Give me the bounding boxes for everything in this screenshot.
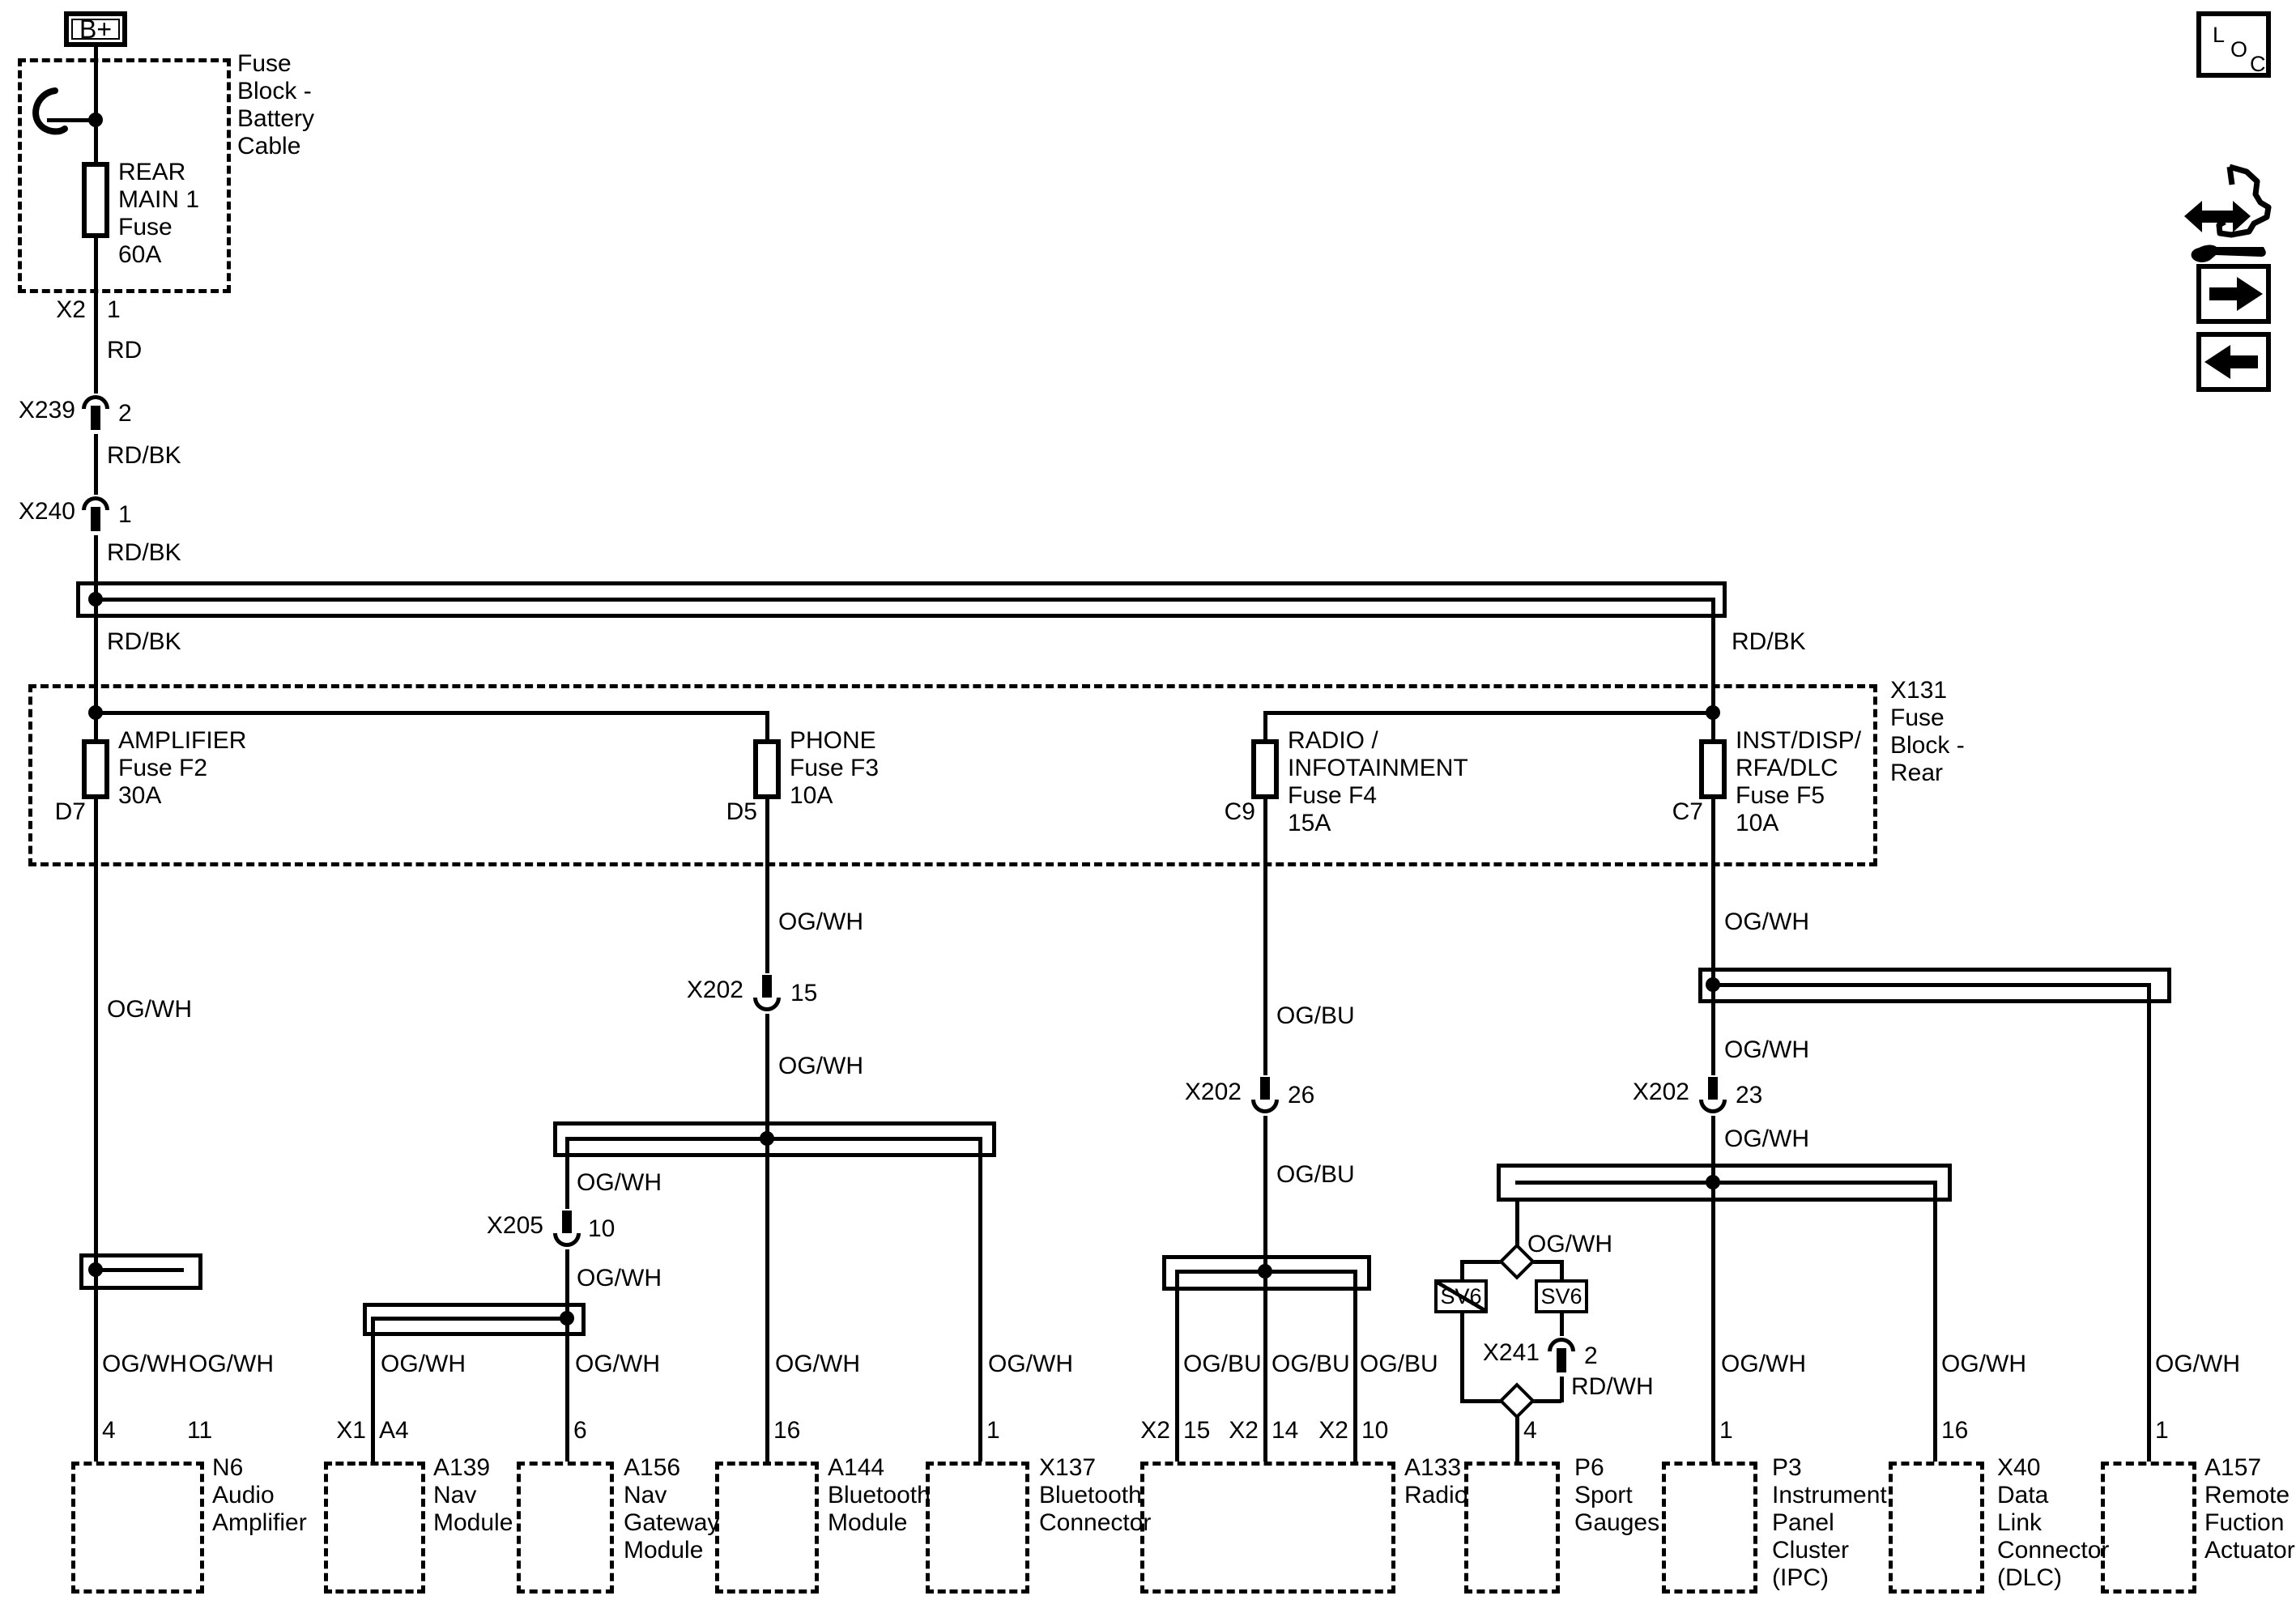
component-box-a144 bbox=[715, 1462, 819, 1594]
wire-label-ogwh: OG/WH bbox=[988, 1351, 1073, 1378]
connector-pin-icon bbox=[562, 1211, 572, 1235]
wire-segment bbox=[1263, 711, 1713, 715]
wire-segment bbox=[1353, 1270, 1357, 1462]
connector-x2-name: X2 bbox=[56, 296, 86, 324]
junction-dot bbox=[88, 705, 103, 720]
connector-pin-icon bbox=[91, 406, 100, 430]
connector-x202-26-name: X202 bbox=[1185, 1079, 1242, 1106]
pin-a133-14: 14 bbox=[1272, 1417, 1298, 1445]
wire-segment bbox=[1711, 983, 2149, 987]
wire-label-ogwh: OG/WH bbox=[102, 1351, 187, 1378]
connector-x202-26-pin: 26 bbox=[1288, 1082, 1314, 1109]
connector-x205-name: X205 bbox=[487, 1212, 543, 1240]
wire-segment bbox=[371, 1317, 567, 1321]
component-label-a144: A144 Bluetooth Module bbox=[828, 1454, 931, 1537]
junction-dot bbox=[88, 1262, 103, 1277]
wire-label-ogwh: OG/WH bbox=[1724, 908, 1809, 936]
fuse-f2-pin: D7 bbox=[55, 798, 86, 826]
wire-segment bbox=[94, 598, 1714, 602]
wire-segment bbox=[2147, 983, 2151, 1462]
junction-dot bbox=[760, 1131, 774, 1146]
component-label-a156: A156 Nav Gateway Module bbox=[624, 1454, 719, 1564]
pin-a133-15: 15 bbox=[1183, 1417, 1210, 1445]
connector-pin-icon bbox=[1557, 1348, 1566, 1372]
fuse-f2-amplifier bbox=[82, 739, 109, 799]
splice-diamond-icon bbox=[1498, 1382, 1535, 1419]
wire-segment bbox=[94, 711, 767, 715]
right-arrow-icon bbox=[2201, 269, 2266, 319]
component-box-p3 bbox=[1662, 1462, 1757, 1594]
wire-label-ogbu: OG/BU bbox=[1276, 1002, 1355, 1030]
wire-label-ogwh: OG/WH bbox=[107, 996, 192, 1023]
fuse-f3-pin: D5 bbox=[726, 798, 757, 826]
wire-label-ogwh: OG/WH bbox=[381, 1351, 466, 1378]
fuse-f2-label: AMPLIFIER Fuse F2 30A bbox=[118, 727, 246, 810]
component-box-x40 bbox=[1889, 1462, 1984, 1594]
wire-label-rdwh: RD/WH bbox=[1571, 1373, 1654, 1401]
fuse-block-rear-label: X131 Fuse Block - Rear bbox=[1890, 677, 1965, 787]
connector-x202-23-name: X202 bbox=[1633, 1079, 1689, 1106]
pin-a133-conn-2: X2 bbox=[1229, 1417, 1259, 1445]
component-label-p3: P3 Instrument Panel Cluster (IPC) bbox=[1772, 1454, 1887, 1592]
wire-segment bbox=[1460, 1312, 1464, 1402]
connector-x2-pin: 1 bbox=[107, 296, 121, 324]
location-view-button[interactable]: L O C bbox=[2196, 11, 2271, 78]
pin-a133-10: 10 bbox=[1361, 1417, 1388, 1445]
connector-pin-icon bbox=[1708, 1077, 1718, 1101]
connector-x202-23-pin: 23 bbox=[1736, 1082, 1762, 1109]
junction-dot bbox=[1706, 705, 1720, 720]
wire-label-rdbk: RD/BK bbox=[107, 539, 181, 567]
sv6-reference: SV6 bbox=[1535, 1279, 1588, 1313]
wire-label-ogwh: OG/WH bbox=[1724, 1126, 1809, 1153]
wire-label-rdbk: RD/BK bbox=[107, 628, 181, 656]
wire-segment bbox=[978, 1137, 982, 1462]
wire-label-rdbk: RD/BK bbox=[1732, 628, 1806, 656]
wire-label-ogwh: OG/WH bbox=[1527, 1231, 1612, 1258]
wire-label-ogbu: OG/BU bbox=[1183, 1351, 1262, 1378]
pin-a139-a4: A4 bbox=[379, 1417, 409, 1445]
connector-x240-name: X240 bbox=[19, 498, 75, 526]
component-view-icon[interactable] bbox=[2183, 162, 2280, 263]
component-label-x40: X40 Data Link Connector (DLC) bbox=[1997, 1454, 2109, 1592]
wire-label-ogwh: OG/WH bbox=[575, 1351, 660, 1378]
loc-letter-c: C bbox=[2250, 52, 2266, 77]
wire-label-ogwh: OG/WH bbox=[577, 1169, 662, 1197]
b-plus-label: B+ bbox=[79, 15, 112, 45]
wire-label-ogwh: OG/WH bbox=[775, 1351, 860, 1378]
wire-label-ogbu: OG/BU bbox=[1276, 1161, 1355, 1189]
wire-label-ogbu: OG/BU bbox=[1360, 1351, 1438, 1378]
connector-x239-pin: 2 bbox=[118, 400, 132, 428]
connector-x241-name: X241 bbox=[1483, 1339, 1540, 1367]
pin-a156-6: 6 bbox=[573, 1417, 587, 1445]
wire-label-ogwh: OG/WH bbox=[577, 1265, 662, 1292]
wire-segment bbox=[565, 1137, 569, 1462]
wire-label-ogwh: OG/WH bbox=[778, 908, 863, 936]
component-label-a133: A133 Radio bbox=[1404, 1454, 1467, 1509]
pin-x40-16: 16 bbox=[1941, 1417, 1968, 1445]
connector-x205-pin: 10 bbox=[588, 1215, 615, 1243]
wire-label-ogwh: OG/WH bbox=[1941, 1351, 2026, 1378]
wire-label-ogwh: OG/WH bbox=[1721, 1351, 1806, 1378]
wire-label-ogwh: OG/WH bbox=[1724, 1036, 1809, 1064]
component-label-p6: P6 Sport Gauges bbox=[1574, 1454, 1659, 1537]
pin-p3-1: 1 bbox=[1719, 1417, 1733, 1445]
pin-n6-11: 11 bbox=[187, 1417, 212, 1445]
connector-pin-icon bbox=[1260, 1077, 1270, 1101]
component-label-x137: X137 Bluetooth Connector bbox=[1039, 1454, 1151, 1537]
left-arrow-icon bbox=[2201, 337, 2266, 387]
fuse-f4-label: RADIO / INFOTAINMENT Fuse F4 15A bbox=[1288, 727, 1468, 837]
component-box-n6 bbox=[71, 1462, 204, 1594]
fuse-rear-main-60a bbox=[82, 162, 109, 238]
component-label-a157: A157 Remote Fuction Actuator bbox=[2204, 1454, 2295, 1564]
connector-pin-icon bbox=[762, 975, 772, 999]
junction-dot bbox=[1706, 1175, 1720, 1189]
fuse-f4-pin: C9 bbox=[1225, 798, 1255, 826]
connector-x202-15-name: X202 bbox=[687, 977, 743, 1004]
connector-x240-pin: 1 bbox=[118, 501, 132, 529]
connector-x202-15-pin: 15 bbox=[790, 980, 817, 1007]
component-box-x137 bbox=[926, 1462, 1029, 1594]
rear-main-fuse-label: REAR MAIN 1 Fuse 60A bbox=[118, 159, 199, 269]
previous-schematic-button[interactable] bbox=[2196, 332, 2271, 392]
battery-cable-hook-icon bbox=[19, 84, 92, 152]
sv6-left-label: SV6 bbox=[1440, 1284, 1481, 1309]
fuse-f4-radio bbox=[1251, 739, 1279, 799]
junction-dot bbox=[88, 592, 103, 606]
loc-letter-l: L bbox=[2213, 23, 2225, 48]
b-plus-terminal: B+ bbox=[64, 11, 127, 47]
pin-n6-4: 4 bbox=[102, 1417, 116, 1445]
wiring-diagram-canvas: B+ SV6 SV6 Fuse Block - Battery Cable RE… bbox=[0, 0, 2296, 1617]
fuse-f5-pin: C7 bbox=[1672, 798, 1703, 826]
wire-segment bbox=[94, 1268, 184, 1272]
wire-segment bbox=[1560, 1375, 1564, 1402]
component-box-a139 bbox=[324, 1462, 425, 1594]
wire-segment bbox=[765, 711, 769, 1462]
pin-a133-conn-3: X2 bbox=[1318, 1417, 1348, 1445]
loc-letter-o: O bbox=[2230, 37, 2247, 62]
wire-segment bbox=[371, 1317, 375, 1462]
connector-pin-icon bbox=[91, 507, 100, 531]
wire-segment bbox=[1175, 1270, 1179, 1462]
wire-segment bbox=[1515, 1181, 1935, 1185]
wire-label-ogwh: OG/WH bbox=[2155, 1351, 2240, 1378]
junction-dot bbox=[1258, 1264, 1272, 1279]
battery-cable-box-label: Fuse Block - Battery Cable bbox=[237, 50, 314, 160]
component-label-n6: N6 Audio Amplifier bbox=[212, 1454, 307, 1537]
pin-a139-conn: X1 bbox=[336, 1417, 366, 1445]
pin-a144-16: 16 bbox=[773, 1417, 800, 1445]
component-box-a157 bbox=[2101, 1462, 2196, 1594]
fuse-f5-label: INST/DISP/ RFA/DLC Fuse F5 10A bbox=[1736, 727, 1861, 837]
component-box-a156 bbox=[517, 1462, 614, 1594]
wire-label-ogwh: OG/WH bbox=[189, 1351, 274, 1378]
connector-x241-pin: 2 bbox=[1584, 1343, 1598, 1370]
component-box-a133 bbox=[1140, 1462, 1395, 1594]
component-label-a139: A139 Nav Module bbox=[433, 1454, 513, 1537]
pin-x137-1: 1 bbox=[986, 1417, 1000, 1445]
wire-label-rd: RD bbox=[107, 337, 142, 364]
junction-dot bbox=[1706, 977, 1720, 992]
fuse-f3-label: PHONE Fuse F3 10A bbox=[790, 727, 879, 810]
component-box-p6 bbox=[1464, 1462, 1560, 1594]
next-schematic-button[interactable] bbox=[2196, 264, 2271, 324]
wire-segment bbox=[1933, 1181, 1937, 1462]
sv6-reference-crossed: SV6 bbox=[1434, 1279, 1488, 1313]
wire-label-ogbu: OG/BU bbox=[1272, 1351, 1350, 1378]
fuse-f3-phone bbox=[753, 739, 781, 799]
connector-x239-name: X239 bbox=[19, 397, 75, 424]
junction-dot bbox=[560, 1311, 574, 1326]
fuse-f5-inst bbox=[1699, 739, 1727, 799]
wire-label-rdbk: RD/BK bbox=[107, 442, 181, 470]
pin-p6-4: 4 bbox=[1523, 1417, 1537, 1445]
pin-a133-conn-1: X2 bbox=[1140, 1417, 1170, 1445]
sv6-right-label: SV6 bbox=[1540, 1284, 1582, 1309]
wire-label-ogwh: OG/WH bbox=[778, 1053, 863, 1080]
pin-a157-1: 1 bbox=[2155, 1417, 2169, 1445]
wire-segment bbox=[1711, 598, 1715, 1462]
